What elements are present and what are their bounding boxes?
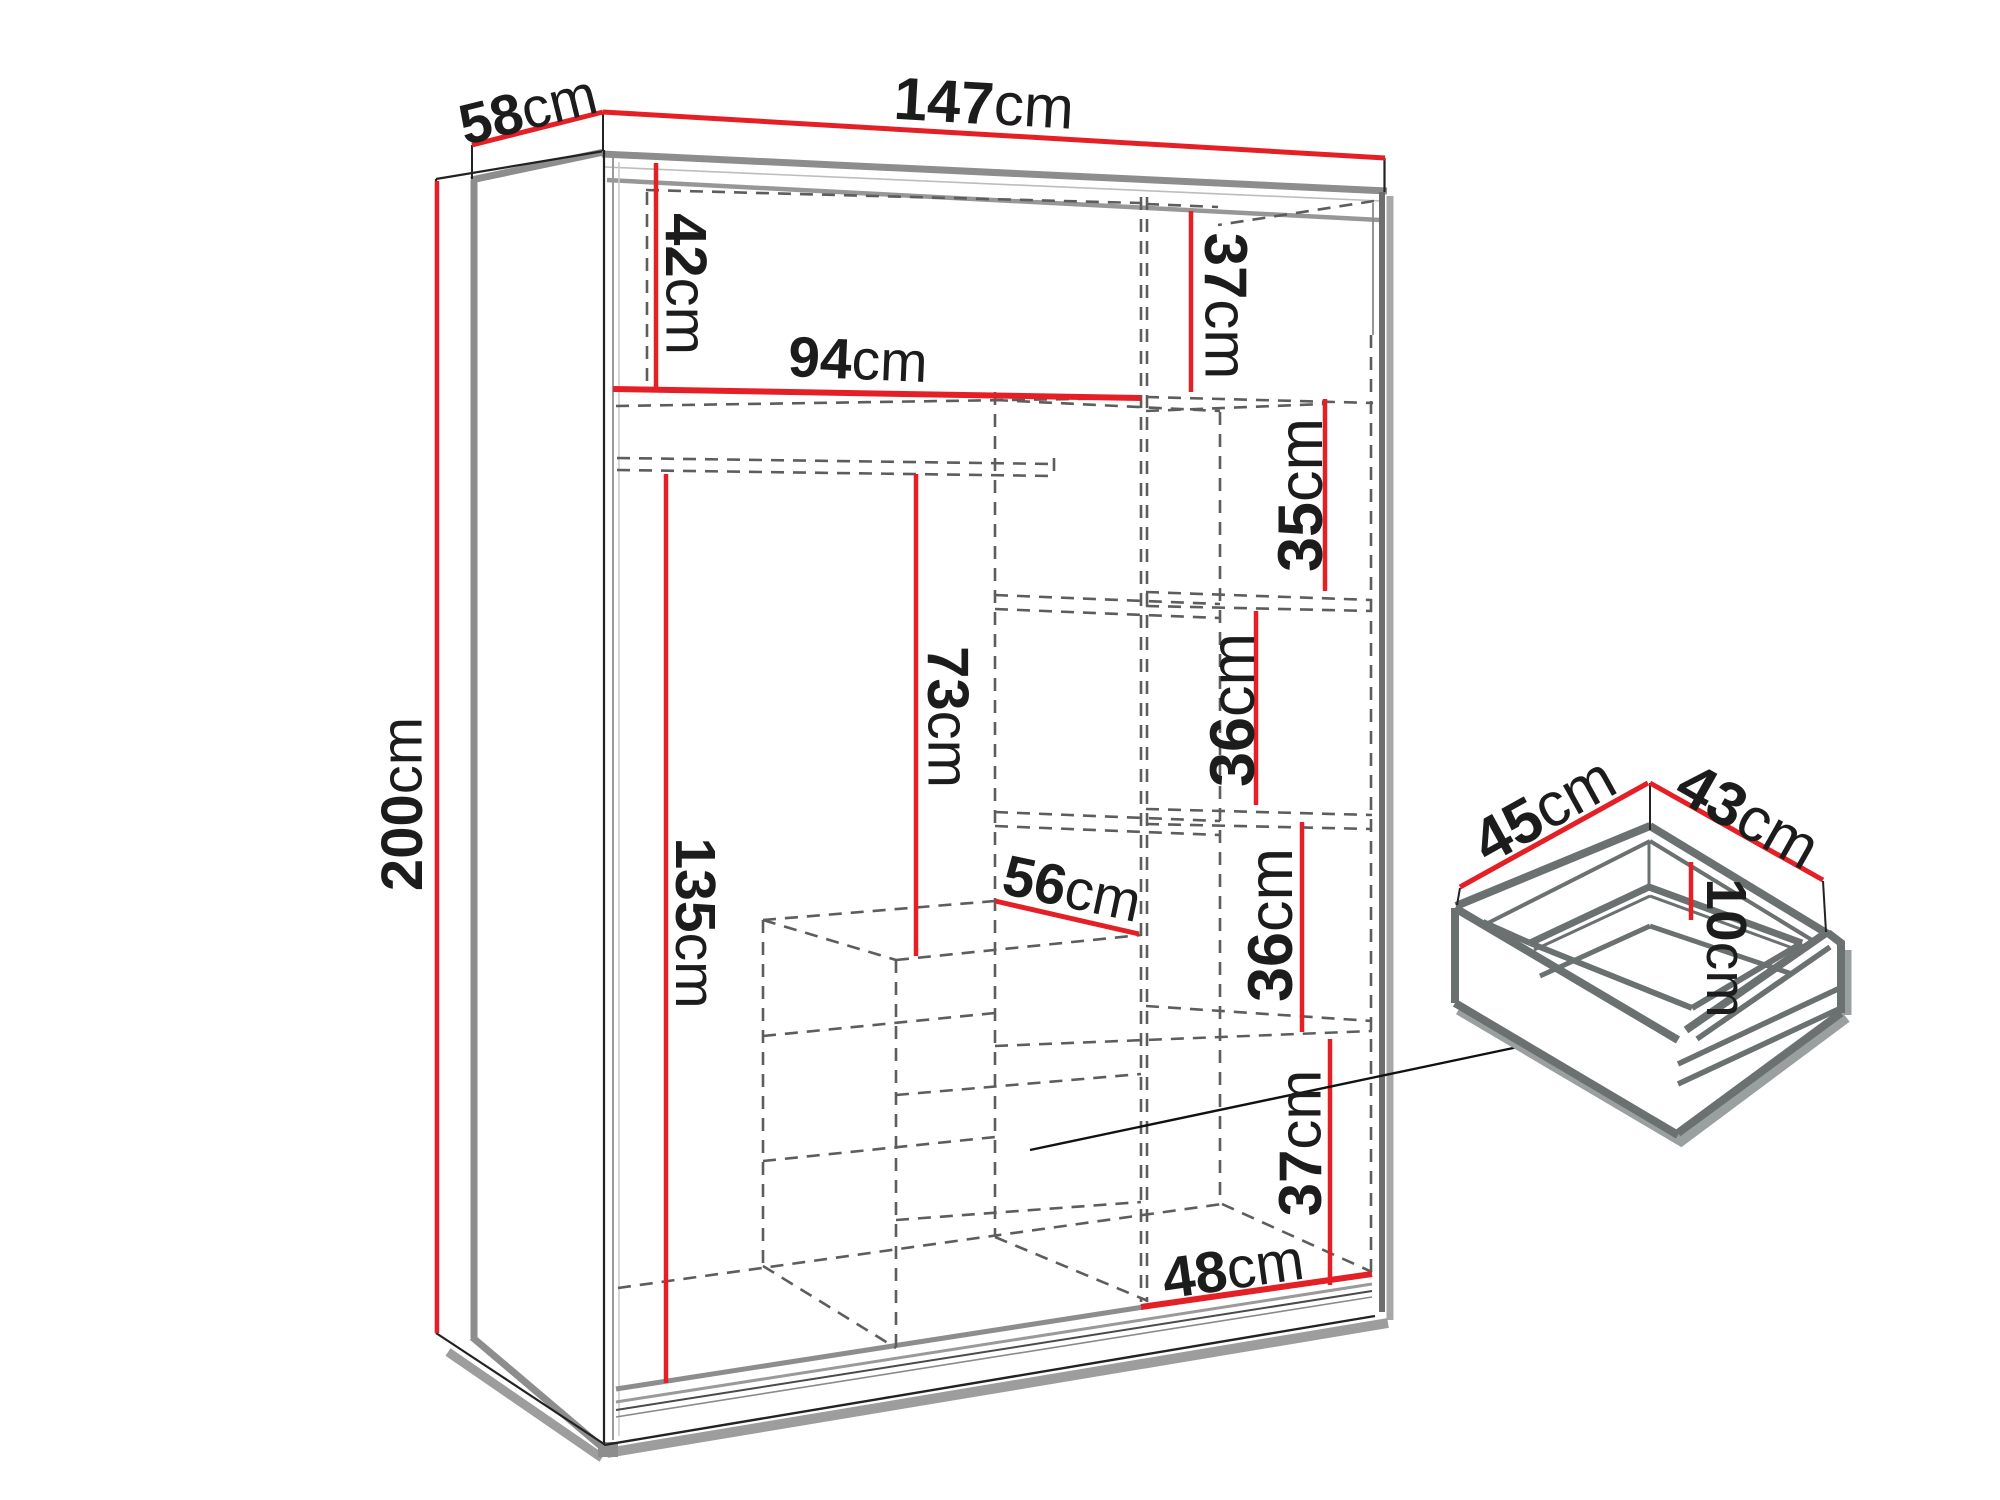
svg-text:37cm: 37cm	[1267, 1070, 1334, 1217]
svg-text:35cm: 35cm	[1266, 418, 1336, 572]
svg-text:37cm: 37cm	[1193, 233, 1260, 380]
svg-text:73cm: 73cm	[916, 646, 981, 788]
svg-text:42cm: 42cm	[654, 213, 719, 355]
svg-text:147cm: 147cm	[892, 64, 1076, 142]
svg-text:200cm: 200cm	[370, 717, 435, 891]
svg-text:135cm: 135cm	[663, 837, 727, 1008]
svg-text:36cm: 36cm	[1236, 848, 1306, 1002]
svg-text:94cm: 94cm	[787, 325, 929, 395]
svg-text:36cm: 36cm	[1198, 633, 1268, 787]
svg-text:10cm: 10cm	[1694, 878, 1758, 1017]
